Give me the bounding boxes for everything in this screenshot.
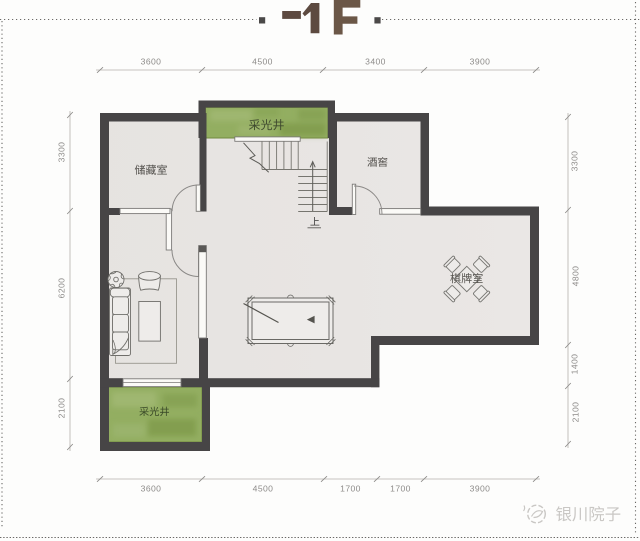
svg-text:4800: 4800: [571, 266, 581, 287]
svg-text:4500: 4500: [253, 484, 274, 494]
svg-text:3300: 3300: [57, 142, 67, 163]
svg-text:2100: 2100: [571, 402, 581, 423]
svg-text:3900: 3900: [470, 57, 491, 67]
svg-text:1400: 1400: [570, 354, 580, 375]
svg-text:2100: 2100: [57, 398, 67, 419]
svg-text:3400: 3400: [365, 57, 386, 67]
svg-text:6200: 6200: [57, 278, 67, 299]
svg-text:3900: 3900: [470, 484, 491, 494]
svg-text:3600: 3600: [141, 57, 162, 67]
svg-text:4500: 4500: [252, 57, 273, 67]
svg-text:1700: 1700: [390, 484, 411, 494]
svg-text:1700: 1700: [340, 484, 361, 494]
svg-text:3300: 3300: [570, 151, 580, 172]
svg-text:3600: 3600: [141, 484, 162, 494]
